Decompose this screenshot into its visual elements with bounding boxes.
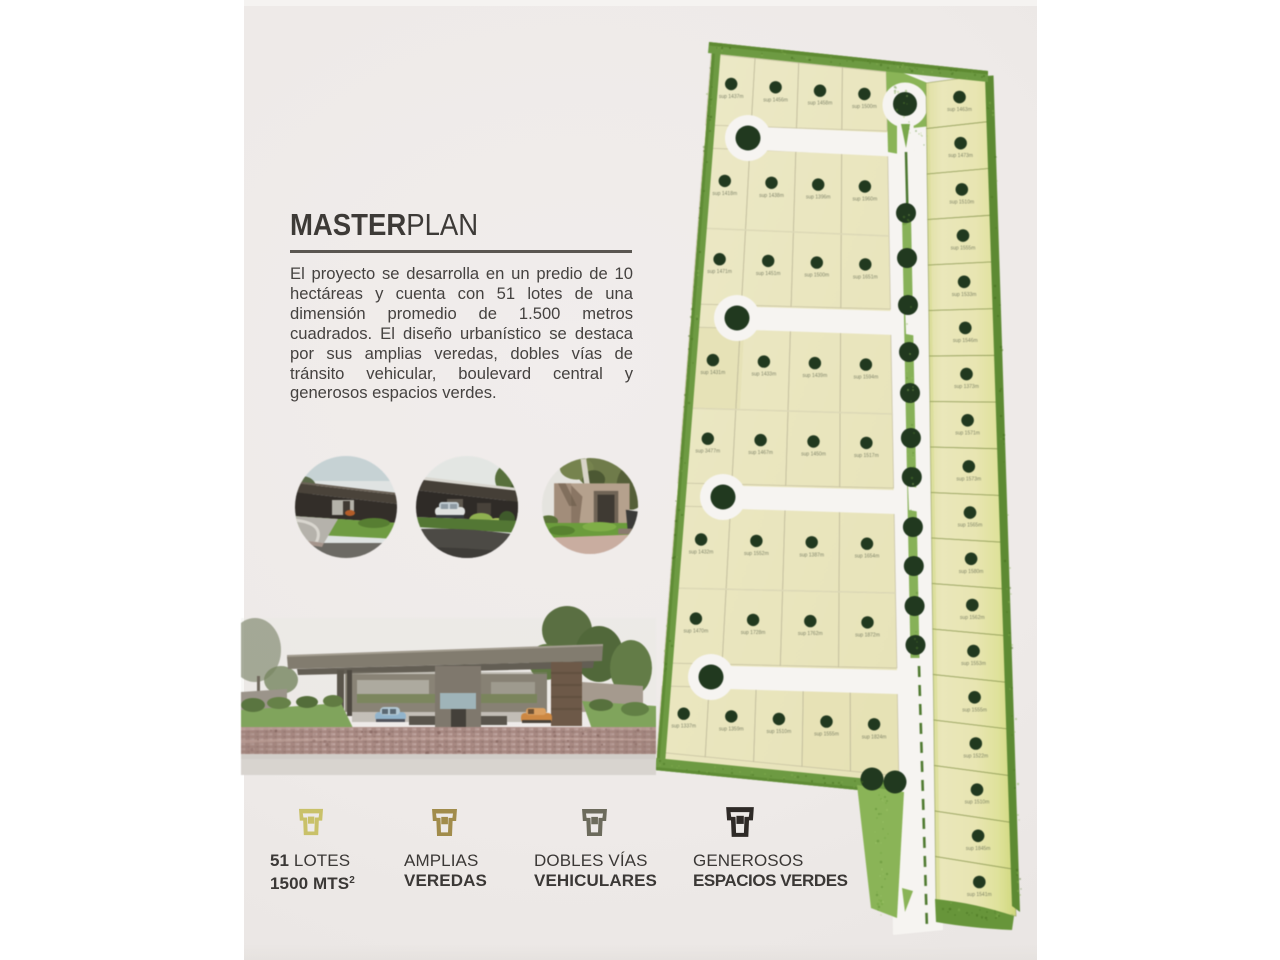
svg-text:sup 1510m: sup 1510m (965, 800, 990, 806)
svg-text:sup 1396m: sup 1396m (806, 195, 831, 201)
svg-text:sup 1359m: sup 1359m (719, 726, 744, 732)
svg-text:sup 1463m: sup 1463m (947, 107, 972, 113)
svg-text:sup 1522m: sup 1522m (963, 754, 988, 760)
svg-text:sup 1546m: sup 1546m (953, 338, 978, 344)
svg-text:sup 1451m: sup 1451m (756, 271, 781, 277)
svg-text:sup 1872m: sup 1872m (855, 632, 880, 638)
svg-text:sup 1437m: sup 1437m (719, 94, 744, 100)
svg-text:sup 1580m: sup 1580m (959, 569, 984, 575)
svg-text:sup 3477m: sup 3477m (695, 449, 720, 455)
svg-text:sup 1654m: sup 1654m (855, 554, 880, 560)
svg-text:sup 1387m: sup 1387m (799, 552, 824, 558)
svg-text:sup 1471m: sup 1471m (707, 269, 732, 275)
svg-text:sup 1824m: sup 1824m (862, 734, 887, 740)
svg-text:sup 1845m: sup 1845m (966, 846, 991, 852)
svg-text:sup 1555m: sup 1555m (962, 707, 987, 713)
svg-text:sup 1553m: sup 1553m (961, 661, 986, 667)
svg-text:sup 1565m: sup 1565m (958, 523, 983, 529)
svg-text:sup 1418m: sup 1418m (712, 191, 737, 197)
svg-text:sup 1438m: sup 1438m (759, 193, 784, 199)
svg-text:sup 1439m: sup 1439m (803, 373, 828, 379)
svg-text:sup 1517m: sup 1517m (854, 453, 879, 459)
svg-text:sup 1470m: sup 1470m (684, 629, 709, 635)
svg-text:sup 1500m: sup 1500m (804, 273, 829, 279)
svg-text:sup 1510m: sup 1510m (767, 729, 792, 735)
svg-text:sup 1500m: sup 1500m (852, 104, 877, 110)
svg-text:sup 1594m: sup 1594m (854, 375, 879, 381)
svg-text:sup 1533m: sup 1533m (952, 292, 977, 298)
svg-text:sup 1651m: sup 1651m (853, 274, 878, 280)
svg-text:sup 1573m: sup 1573m (956, 476, 981, 482)
svg-text:sup 1960m: sup 1960m (853, 197, 878, 203)
svg-text:sup 1456m: sup 1456m (763, 97, 788, 103)
svg-text:sup 1510m: sup 1510m (949, 199, 974, 205)
svg-text:sup 1473m: sup 1473m (948, 153, 973, 159)
svg-text:sup 1552m: sup 1552m (744, 551, 769, 557)
svg-text:sup 1467m: sup 1467m (748, 450, 773, 456)
svg-text:sup 1432m: sup 1432m (689, 550, 714, 556)
svg-text:sup 1562m: sup 1562m (960, 615, 985, 621)
svg-text:sup 1433m: sup 1433m (752, 372, 777, 378)
svg-text:sup 1728m: sup 1728m (741, 630, 766, 636)
svg-text:sup 1555m: sup 1555m (814, 732, 839, 738)
svg-text:sup 1373m: sup 1373m (954, 384, 979, 390)
svg-text:sup 1458m: sup 1458m (808, 101, 833, 107)
svg-text:sup 1571m: sup 1571m (955, 430, 980, 436)
svg-text:sup 1541m: sup 1541m (967, 892, 992, 898)
svg-text:sup 1555m: sup 1555m (951, 246, 976, 252)
svg-text:sup 1337m: sup 1337m (671, 724, 696, 730)
svg-text:sup 1450m: sup 1450m (801, 452, 826, 458)
svg-text:sup 1431m: sup 1431m (701, 370, 726, 376)
svg-text:sup 1762m: sup 1762m (798, 631, 823, 637)
